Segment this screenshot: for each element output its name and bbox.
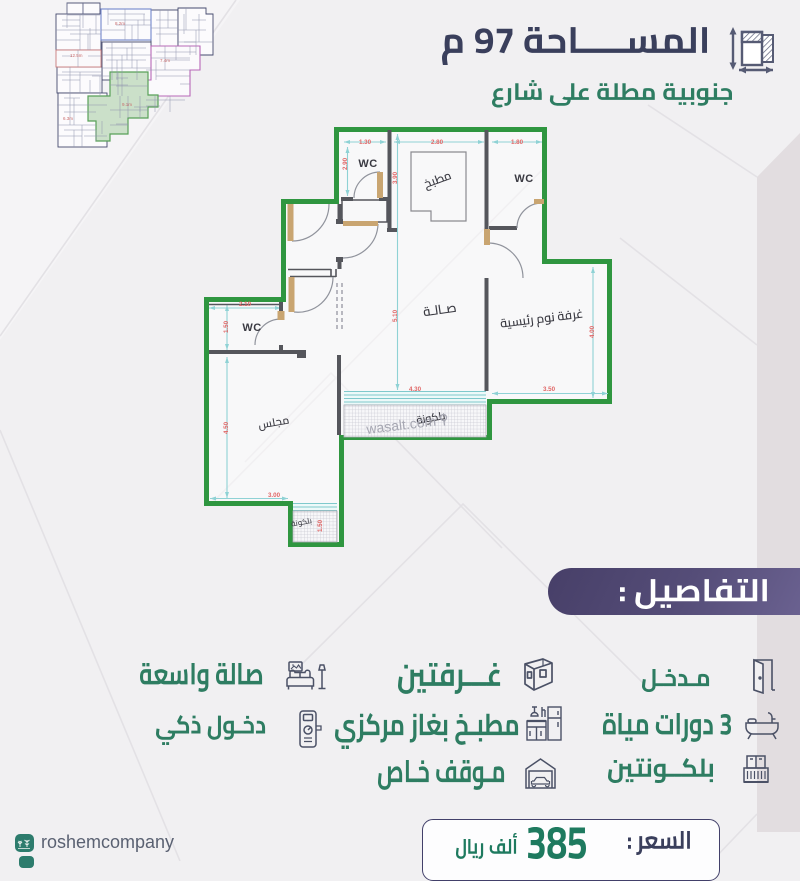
- svg-text:1.30: 1.30: [359, 139, 372, 146]
- svg-text:4.00: 4.00: [589, 325, 596, 338]
- svg-text:9.1m: 9.1m: [122, 102, 132, 107]
- svg-text:4.50: 4.50: [223, 421, 230, 434]
- svg-text:12.5m: 12.5m: [70, 53, 83, 58]
- svg-text:3.50: 3.50: [543, 386, 556, 393]
- svg-text:1.50: 1.50: [317, 519, 324, 532]
- svg-text:2.10: 2.10: [239, 301, 252, 308]
- svg-text:3.00: 3.00: [268, 492, 281, 499]
- svg-text:4.30: 4.30: [409, 386, 422, 393]
- svg-text:5.10: 5.10: [392, 309, 399, 322]
- svg-text:6.3m: 6.3m: [63, 116, 73, 121]
- svg-text:3.90: 3.90: [392, 171, 399, 184]
- svg-text:2.90: 2.90: [342, 157, 349, 170]
- svg-text:WC: WC: [514, 173, 533, 185]
- svg-text:1.80: 1.80: [511, 139, 524, 146]
- svg-text:1.50: 1.50: [223, 320, 230, 333]
- svg-text:WC: WC: [358, 158, 377, 170]
- svg-text:7.4m: 7.4m: [160, 58, 170, 63]
- svg-text:2.80: 2.80: [431, 139, 444, 146]
- svg-text:8.2m: 8.2m: [115, 21, 125, 26]
- svg-text:WC: WC: [242, 322, 261, 334]
